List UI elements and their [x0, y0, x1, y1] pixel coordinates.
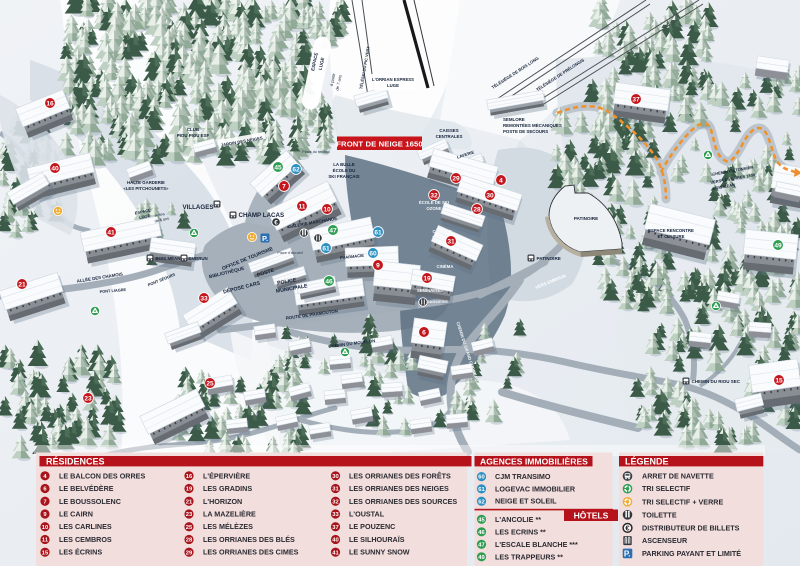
svg-text:21: 21 [186, 499, 193, 505]
svg-text:23: 23 [186, 512, 193, 518]
svg-text:32: 32 [332, 499, 338, 505]
svg-text:REMONTÉES MÉCANIQUES: REMONTÉES MÉCANIQUES [503, 123, 562, 128]
svg-text:P.: P. [262, 234, 268, 243]
svg-text:NEIGE ET SOLEIL: NEIGE ET SOLEIL [495, 497, 557, 506]
svg-text:LE SILHOURAÏS: LE SILHOURAÏS [349, 535, 405, 544]
svg-text:33: 33 [200, 295, 208, 302]
svg-text:10: 10 [42, 525, 48, 531]
svg-text:CHEMIN DU RIOU SEC: CHEMIN DU RIOU SEC [692, 379, 741, 384]
svg-text:ET CULTURE: ET CULTURE [658, 234, 685, 239]
svg-text:11: 11 [42, 538, 49, 544]
svg-text:7: 7 [282, 183, 286, 190]
svg-text:SEMLORE: SEMLORE [503, 117, 525, 122]
svg-text:TRI SELECTIF: TRI SELECTIF [642, 484, 691, 493]
svg-text:49: 49 [478, 555, 485, 561]
svg-text:60: 60 [478, 475, 484, 481]
svg-text:LES ÉCRINS: LES ÉCRINS [59, 548, 102, 557]
svg-text:29: 29 [452, 175, 460, 182]
svg-text:46: 46 [478, 530, 485, 536]
svg-text:LES ORRIANES DES FORÊTS: LES ORRIANES DES FORÊTS [349, 471, 451, 480]
svg-text:25: 25 [206, 380, 214, 387]
svg-text:RÉSIDENCES: RÉSIDENCES [46, 456, 105, 466]
svg-text:LA BULLE: LA BULLE [333, 162, 355, 167]
svg-text:LE POUZENC: LE POUZENC [349, 522, 395, 531]
svg-text:€: € [274, 220, 278, 227]
svg-text:L'ÉPERVIÈRE: L'ÉPERVIÈRE [203, 471, 250, 480]
svg-text:PATINOIRE: PATINOIRE [537, 256, 561, 261]
svg-text:11: 11 [299, 203, 306, 210]
svg-text:31: 31 [332, 487, 339, 493]
svg-text:LES ORRIANES DES SOURCES: LES ORRIANES DES SOURCES [349, 497, 457, 506]
svg-text:CAISSES: CAISSES [439, 128, 458, 133]
svg-text:40: 40 [332, 538, 338, 544]
svg-text:L'HORIZON: L'HORIZON [203, 497, 242, 506]
svg-text:LE BOUSSOLENC: LE BOUSSOLENC [59, 497, 121, 506]
svg-text:19: 19 [186, 487, 193, 493]
svg-text:46: 46 [325, 278, 333, 285]
svg-text:15: 15 [775, 377, 783, 384]
svg-text:LES CEMBROS: LES CEMBROS [59, 535, 112, 544]
svg-text:HALTE GARDERIE: HALTE GARDERIE [127, 180, 165, 185]
svg-text:37: 37 [332, 525, 338, 531]
svg-text:DISTRIBUTEUR DE BILLETS: DISTRIBUTEUR DE BILLETS [642, 523, 740, 532]
svg-text:LES TRAPPEURS **: LES TRAPPEURS ** [495, 552, 563, 561]
svg-text:41: 41 [107, 229, 115, 236]
svg-text:PATINOIRE: PATINOIRE [574, 216, 598, 221]
svg-text:CABINET: CABINET [432, 229, 451, 234]
svg-text:L'ORRIAN EXPRESS: L'ORRIAN EXPRESS [372, 77, 414, 82]
svg-text:AGENCES IMMOBILIÈRES: AGENCES IMMOBILIÈRES [480, 456, 588, 466]
svg-text:L'ANCOLIE **: L'ANCOLIE ** [495, 515, 541, 524]
svg-text:62: 62 [478, 499, 484, 505]
svg-text:Place d'accueil: Place d'accueil [277, 251, 302, 255]
svg-text:VILLAGES: VILLAGES [183, 204, 214, 211]
svg-text:L'ESCALE BLANCHE ***: L'ESCALE BLANCHE *** [495, 540, 578, 549]
svg-text:15: 15 [42, 550, 49, 556]
svg-text:LES MÉLÈZES: LES MÉLÈZES [203, 522, 253, 531]
svg-text:LE BALCON DES ORRES: LE BALCON DES ORRES [59, 471, 145, 480]
svg-text:23: 23 [84, 395, 92, 402]
svg-text:LE SUNNY SNOW: LE SUNNY SNOW [349, 548, 410, 557]
svg-text:9: 9 [376, 262, 380, 269]
svg-text:FRONT DE NEIGE 1650: FRONT DE NEIGE 1650 [336, 140, 423, 149]
svg-text:ESPACE RENCONTRE: ESPACE RENCONTRE [648, 228, 694, 233]
svg-text:LES CARLINES: LES CARLINES [59, 522, 112, 531]
svg-text:POSTE DE SECOURS: POSTE DE SECOURS [503, 129, 548, 134]
svg-text:LUGE: LUGE [387, 83, 399, 88]
svg-text:37: 37 [632, 96, 640, 103]
svg-text:LES ORRIANES DES NEIGES: LES ORRIANES DES NEIGES [349, 484, 449, 493]
svg-text:10: 10 [323, 206, 331, 213]
svg-text:LES ORRIANES DES BLÉS: LES ORRIANES DES BLÉS [203, 535, 295, 544]
svg-text:OZONE: OZONE [426, 206, 441, 211]
svg-text:Place du festival: Place du festival [302, 150, 330, 154]
svg-text:31: 31 [447, 238, 455, 245]
svg-text:CINÉMA: CINÉMA [437, 264, 454, 269]
svg-text:LOGEVAC IMMOBILIER: LOGEVAC IMMOBILIER [495, 484, 576, 493]
svg-text:LES ECRINS **: LES ECRINS ** [495, 527, 546, 536]
svg-text:30: 30 [332, 474, 338, 480]
svg-text:40: 40 [51, 165, 59, 172]
svg-text:P.: P. [624, 549, 631, 558]
svg-text:CENTRALES: CENTRALES [436, 134, 463, 139]
svg-text:LA MAZELIÈRE: LA MAZELIÈRE [203, 509, 256, 518]
svg-text:28: 28 [186, 538, 193, 544]
svg-text:L'OUSTAL: L'OUSTAL [349, 509, 385, 518]
svg-text:CJM TRANSIMO: CJM TRANSIMO [495, 472, 551, 481]
svg-text:CLUB: CLUB [187, 127, 199, 132]
svg-text:4: 4 [499, 177, 503, 184]
svg-text:30: 30 [486, 192, 494, 199]
svg-text:21: 21 [18, 281, 26, 288]
svg-text:LES GRADINS: LES GRADINS [203, 484, 252, 493]
svg-text:45: 45 [478, 517, 485, 523]
svg-text:LÉGENDE: LÉGENDE [625, 456, 669, 466]
svg-text:33: 33 [332, 512, 339, 518]
svg-text:61: 61 [374, 229, 382, 236]
svg-text:60: 60 [369, 250, 377, 257]
svg-text:49: 49 [774, 242, 782, 249]
svg-text:16: 16 [46, 100, 54, 107]
svg-text:25: 25 [186, 525, 193, 531]
svg-text:SKI FRANÇAIS: SKI FRANÇAIS [328, 174, 359, 179]
svg-text:HÔTELS: HÔTELS [574, 510, 609, 521]
svg-text:ARRET DE NAVETTE: ARRET DE NAVETTE [642, 472, 714, 481]
svg-text:ASCENSEUR: ASCENSEUR [642, 536, 688, 545]
svg-text:61: 61 [478, 487, 485, 493]
svg-text:ÉCOLE DU: ÉCOLE DU [333, 168, 356, 173]
svg-text:19: 19 [423, 275, 431, 282]
svg-text:SÉMINAIRES: SÉMINAIRES [417, 288, 443, 293]
svg-text:61: 61 [322, 245, 330, 252]
svg-text:TOILETTE: TOILETTE [642, 510, 677, 519]
svg-text:6: 6 [422, 329, 426, 336]
svg-text:LE BELVÉDÈRE: LE BELVÉDÈRE [59, 484, 114, 493]
svg-text:62: 62 [292, 166, 300, 173]
svg-text:«LES PITCHOUNETS»: «LES PITCHOUNETS» [123, 186, 169, 191]
svg-text:TRI SELECTIF + VERRE: TRI SELECTIF + VERRE [642, 497, 723, 506]
svg-text:32: 32 [430, 192, 438, 199]
svg-text:47: 47 [329, 227, 337, 234]
svg-text:41: 41 [332, 550, 339, 556]
svg-text:28: 28 [473, 206, 481, 213]
svg-text:45: 45 [274, 164, 282, 171]
svg-text:PARKING PAYANT ET LIMITÉ: PARKING PAYANT ET LIMITÉ [642, 549, 741, 558]
svg-text:29: 29 [186, 550, 193, 556]
svg-text:16: 16 [186, 474, 193, 480]
svg-text:LE CAIRN: LE CAIRN [59, 509, 93, 518]
svg-text:7: 7 [43, 499, 46, 505]
svg-text:LES ORRIANES DES CIMES: LES ORRIANES DES CIMES [203, 548, 299, 557]
svg-text:47: 47 [478, 542, 484, 548]
svg-text:PIOU PIOU ESF: PIOU PIOU ESF [177, 133, 210, 138]
